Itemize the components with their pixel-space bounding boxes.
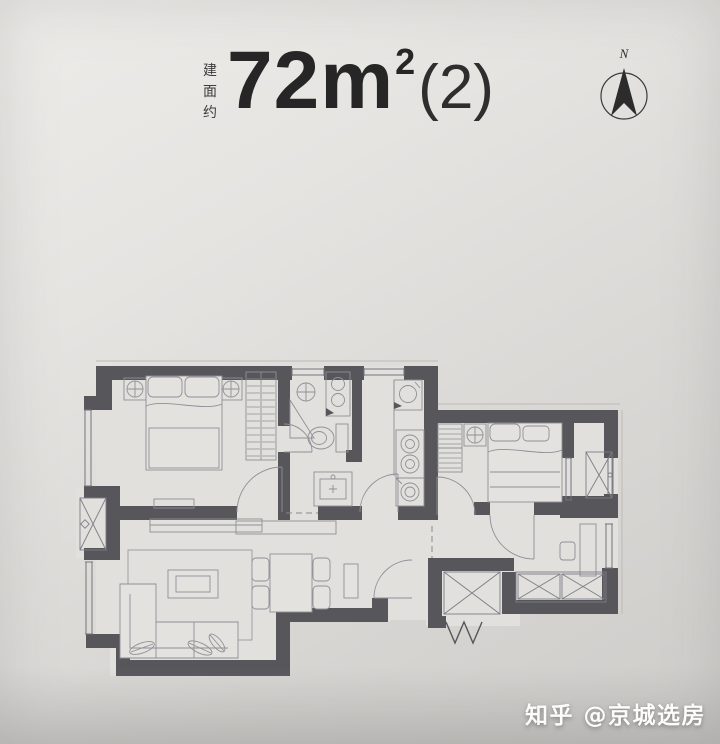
dining-chair — [313, 586, 330, 609]
floorplan-svg — [0, 0, 720, 744]
dining-chair — [313, 558, 330, 581]
watermark: 知乎 @京城选房 — [525, 696, 706, 730]
dining-table — [270, 554, 312, 612]
bed-bedroom2 — [488, 423, 562, 502]
double-bed — [146, 376, 222, 470]
dining-chair — [252, 586, 269, 609]
dining-chair — [252, 558, 269, 581]
window-bedroom1-left — [84, 410, 92, 486]
coffee-table — [168, 570, 218, 598]
window-living-left — [85, 562, 93, 634]
washbasin-round — [297, 383, 315, 401]
side-cabinet — [344, 564, 358, 598]
